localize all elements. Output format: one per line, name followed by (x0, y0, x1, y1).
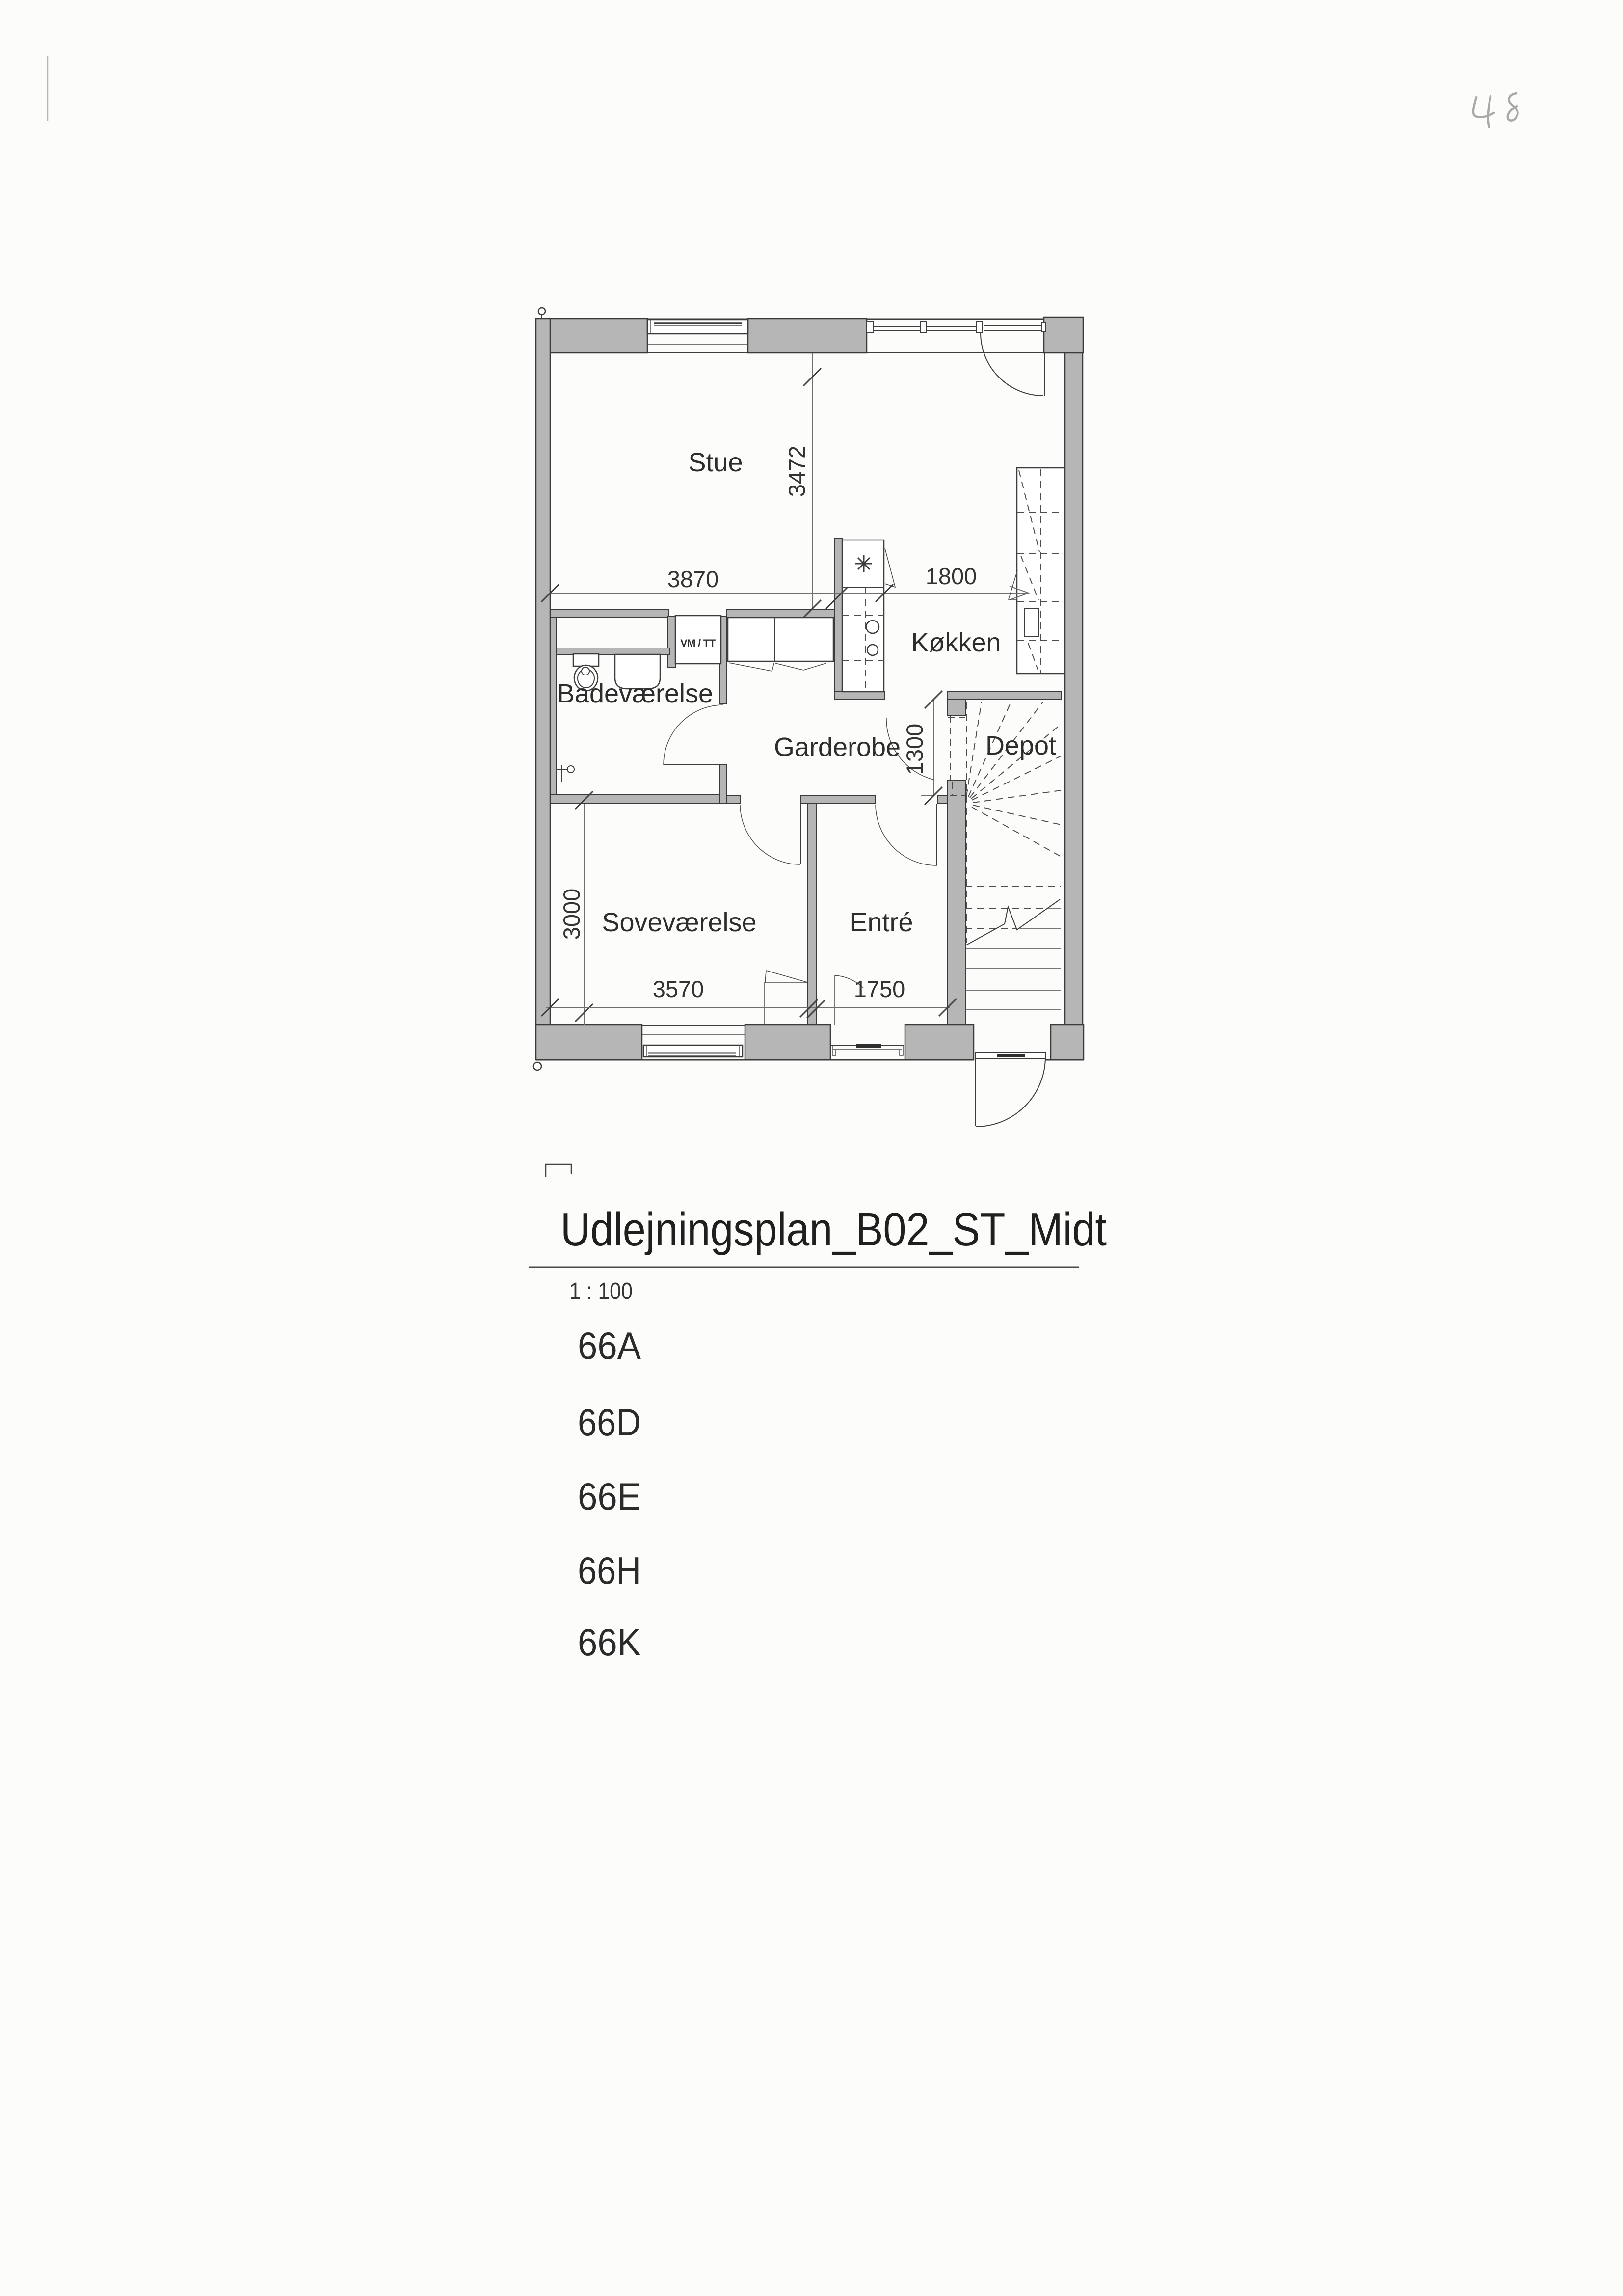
svg-text:Soveværelse: Soveværelse (602, 908, 756, 937)
svg-text:3472: 3472 (784, 446, 810, 497)
svg-text:66D: 66D (578, 1401, 641, 1444)
svg-text:3570: 3570 (653, 976, 704, 1002)
svg-text:Entré: Entré (850, 908, 913, 937)
svg-text:1 : 100: 1 : 100 (569, 1278, 633, 1304)
svg-text:Stue: Stue (688, 448, 743, 477)
svg-text:66E: 66E (578, 1475, 641, 1518)
svg-text:Badeværelse: Badeværelse (557, 679, 713, 708)
svg-text:VM / TT: VM / TT (680, 638, 716, 649)
svg-text:Udlejningsplan_B02_ST_Midt: Udlejningsplan_B02_ST_Midt (560, 1203, 1107, 1256)
svg-text:1800: 1800 (926, 563, 977, 589)
svg-text:66H: 66H (578, 1549, 641, 1592)
svg-text:3000: 3000 (559, 889, 585, 940)
svg-text:66K: 66K (578, 1621, 641, 1664)
svg-text:66A: 66A (578, 1324, 641, 1367)
svg-text:3870: 3870 (667, 566, 719, 592)
svg-text:Køkken: Køkken (911, 628, 1001, 657)
svg-text:Depot: Depot (985, 731, 1056, 760)
svg-text:Garderobe: Garderobe (774, 732, 901, 762)
svg-text:1300: 1300 (902, 724, 928, 775)
svg-text:1750: 1750 (854, 976, 905, 1002)
